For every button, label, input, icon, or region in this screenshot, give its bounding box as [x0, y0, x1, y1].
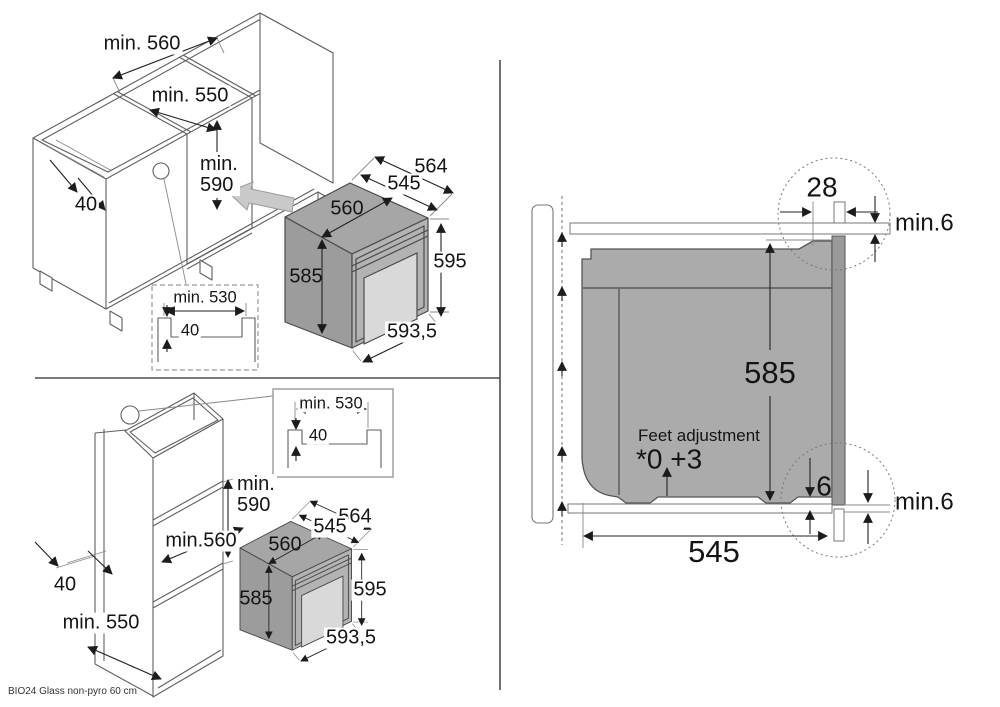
detail-dim-label-min530: min. 530 — [171, 289, 238, 306]
dim-label-545: 545 — [688, 536, 740, 568]
dim-label-min6-bottom: min.6 — [895, 491, 954, 516]
oven-dim-label-560: 560 — [330, 199, 363, 220]
oven-dim-label-545: 545 — [385, 174, 422, 195]
dim-label-rail-40: 40 — [52, 575, 78, 596]
feet-adjustment-label: Feet adjustment — [638, 427, 760, 445]
feet-adjustment-value: *0 +3 — [636, 444, 702, 473]
detail-dim-label-40: 40 — [179, 322, 201, 339]
rear-wall — [532, 205, 553, 523]
detail-callout-marker — [153, 163, 169, 179]
detail-callout-marker — [121, 406, 139, 424]
oven-dim-label-560: 560 — [268, 535, 301, 556]
dim-label-min560: min. 560 — [102, 34, 183, 55]
dim-label-min590: min. 590 — [235, 474, 277, 516]
oven-dim-label-595: 595 — [431, 252, 468, 273]
dim-label-rail-40: 40 — [73, 195, 99, 216]
dim-label-min550: min. 550 — [61, 613, 142, 634]
section-view — [532, 158, 895, 557]
oven-dim-label-595: 595 — [351, 580, 388, 601]
dim-label-min6-top: min.6 — [895, 212, 954, 237]
dim-label-585: 585 — [744, 357, 796, 389]
dim-label-min550: min. 550 — [150, 86, 231, 107]
detail-dim-label-40: 40 — [307, 427, 329, 444]
model-label: BIO24 Glass non-pyro 60 cm — [8, 687, 137, 697]
oven-dim-label-593-5: 593,5 — [385, 322, 439, 343]
oven-dim-label-585: 585 — [239, 589, 272, 610]
dim-label-28: 28 — [804, 172, 839, 201]
oven-dim-label-545: 545 — [311, 517, 348, 538]
oven-dim-label-593-5: 593,5 — [324, 628, 378, 649]
detail-dim-label-min530: min. 530 — [297, 395, 364, 412]
oven-rear-panel — [832, 236, 845, 505]
shelf-front-trim — [834, 509, 844, 541]
oven-dim-label-585: 585 — [289, 267, 322, 288]
dim-label-min560: min.560 — [163, 531, 238, 552]
worktop-back-trim — [834, 202, 845, 223]
installation-diagram-page: min. 560 min. 550 min. 590 40 min. 530 4… — [0, 0, 1000, 707]
worktop-strip — [570, 223, 890, 234]
bottom-shelf — [568, 504, 832, 513]
dim-label-6: 6 — [816, 471, 832, 500]
dim-label-min590: min. 590 — [198, 154, 240, 196]
